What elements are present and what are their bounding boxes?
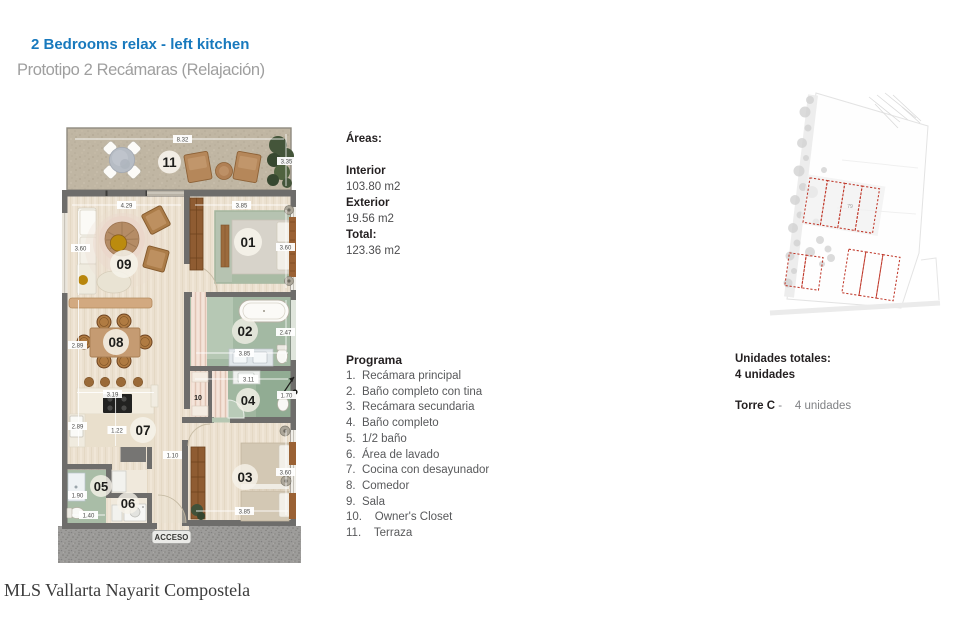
svg-text:3.19: 3.19 [107,392,119,398]
svg-text:07: 07 [135,423,150,438]
svg-text:1.70: 1.70 [281,393,293,399]
svg-text:08: 08 [108,335,124,350]
svg-text:2.47: 2.47 [280,330,292,336]
svg-text:04: 04 [241,393,256,408]
svg-text:1.90: 1.90 [72,493,84,499]
svg-text:3.85: 3.85 [236,203,248,209]
svg-text:1.40: 1.40 [83,513,95,519]
svg-text:01: 01 [240,235,256,250]
svg-text:4.29: 4.29 [121,203,133,209]
svg-text:2.89: 2.89 [72,424,84,430]
svg-text:8.32: 8.32 [177,137,189,143]
svg-text:3.60: 3.60 [280,245,292,251]
svg-text:3.60: 3.60 [280,470,292,476]
svg-text:1.22: 1.22 [111,428,123,434]
svg-text:03: 03 [237,470,253,485]
svg-text:ACCESO: ACCESO [155,533,189,542]
svg-text:10: 10 [194,395,202,402]
svg-text:3.35: 3.35 [281,159,293,165]
svg-text:11: 11 [162,155,177,170]
svg-text:09: 09 [116,257,131,272]
svg-text:3.85: 3.85 [239,351,251,357]
svg-text:05: 05 [94,479,108,494]
svg-text:06: 06 [121,496,135,511]
svg-text:3.60: 3.60 [75,246,87,252]
svg-text:79: 79 [847,204,853,210]
svg-text:3.85: 3.85 [239,509,251,515]
svg-text:1.10: 1.10 [167,453,179,459]
svg-text:3.11: 3.11 [243,377,255,383]
svg-text:02: 02 [237,324,252,339]
svg-text:2.89: 2.89 [72,343,84,349]
